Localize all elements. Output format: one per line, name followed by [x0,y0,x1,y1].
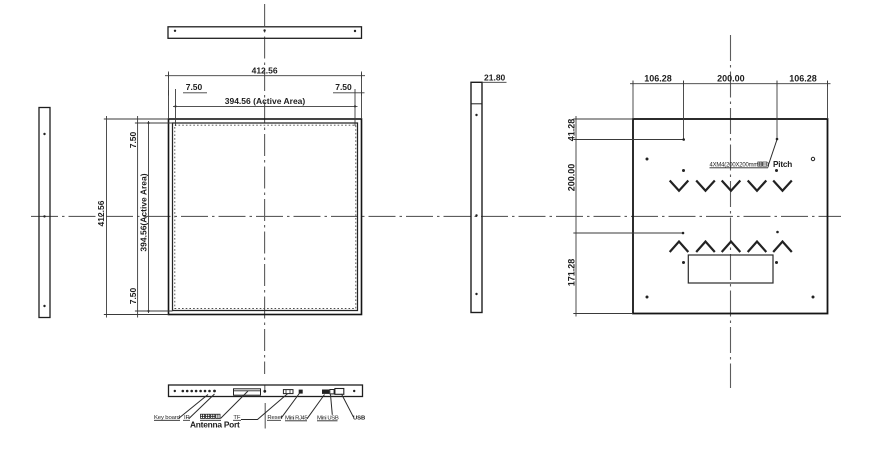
svg-text:394.56 (Active Area): 394.56 (Active Area) [225,96,306,106]
svg-text:200.00: 200.00 [717,73,745,83]
svg-text:106.28: 106.28 [789,73,817,83]
svg-text:7.50: 7.50 [186,82,203,92]
svg-text:Pitch: Pitch [773,160,792,169]
svg-text:171.28: 171.28 [567,259,577,287]
svg-text:41.28: 41.28 [567,119,577,142]
svg-text:412.56: 412.56 [96,200,106,226]
svg-text:USB: USB [353,416,365,422]
svg-text:412.56: 412.56 [252,66,278,76]
svg-text:106.28: 106.28 [644,73,672,83]
svg-text:7.50: 7.50 [128,287,138,304]
svg-text:7.50: 7.50 [335,82,352,92]
svg-text:7.50: 7.50 [128,131,138,148]
svg-text:Antenna Port: Antenna Port [190,419,240,429]
svg-text:200.00: 200.00 [567,164,577,192]
svg-text:21.80: 21.80 [484,73,506,83]
svg-text:394.56(Active Area): 394.56(Active Area) [139,173,149,251]
